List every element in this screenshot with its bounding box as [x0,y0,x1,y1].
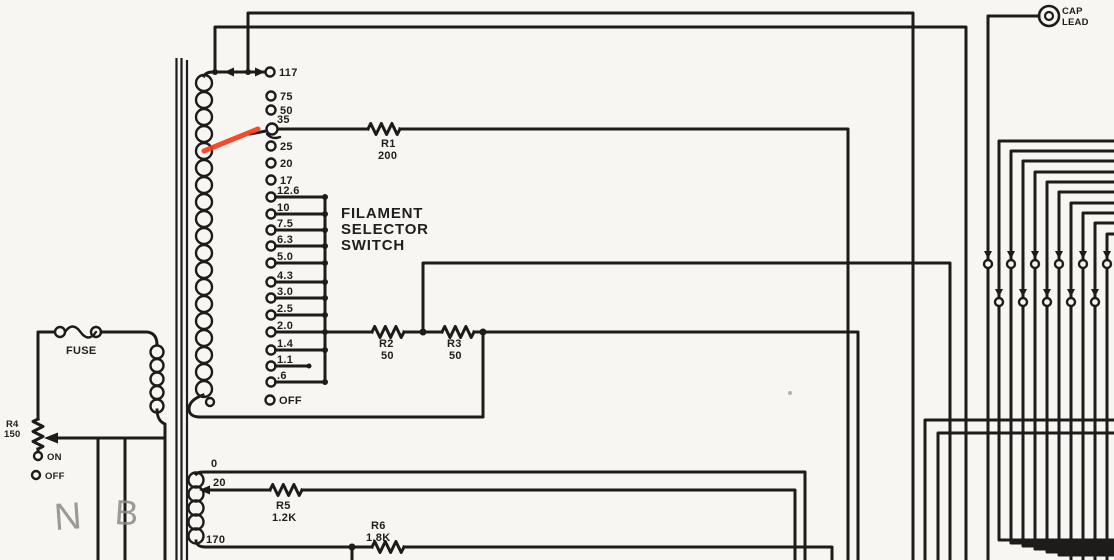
tap-label: 1.1 [277,354,293,366]
tap-label: 7.5 [277,218,293,230]
resistor-r2 [372,327,404,338]
tap-label: 117 [279,67,298,79]
resistor-name: R1 [381,138,396,150]
switch-title-line: FILAMENT [341,205,423,222]
filament-selector-switch: 117 75 50 35 25 20 17 12.6 10 7.5 6.3 5.… [266,67,429,407]
resistor-name: R2 [379,338,394,350]
paper-speck [788,391,792,395]
off-label: OFF [45,471,65,482]
tap-label: OFF [279,395,302,407]
tap-35 [267,124,278,135]
winding-tap-label: 0 [211,458,217,470]
switch-title-line: SWITCH [341,237,405,254]
resistor-r4 [33,419,43,449]
fuse-terminal [55,327,65,337]
tap-label: 2.5 [277,303,293,315]
winding-tap-label: 170 [206,534,225,546]
resistor-name: R3 [447,338,462,350]
primary-circuit: FUSE R4 150 ON OFF [4,327,165,560]
resistor-r3 [442,327,474,338]
tap-label: 1.4 [277,338,294,350]
resistor-value: 50 [449,350,462,362]
wiring-harness [925,141,1114,560]
arrow-right-icon [255,68,265,77]
resistor-name: R6 [371,520,386,532]
tap-label: 35 [277,114,290,126]
tap-label: 3.0 [277,286,293,298]
winding-tap-label: 20 [213,477,226,489]
resistor-value: 1.2K [272,512,296,524]
cap-lead-label: LEAD [1062,17,1089,28]
secondary-coil [189,72,214,417]
tap-label: .6 [277,370,287,382]
tap-label: 10 [277,202,290,214]
cap-lead-label: CAP [1062,6,1083,17]
tap-label: 2.0 [277,320,293,332]
off-terminal [32,471,40,479]
arrow-left-icon [224,68,234,77]
tap-20 [267,159,276,168]
tap-50 [267,106,276,115]
fuse-label: FUSE [66,345,97,357]
on-terminal [34,452,42,460]
resistor-r1 [368,124,400,135]
r2-r3-branch: R2 50 R3 50 [200,263,950,560]
tap-off [266,396,275,405]
resistor-value: 50 [381,350,394,362]
pencil-note-b: B [114,493,140,534]
schematic-scan: 117 75 50 35 25 20 17 12.6 10 7.5 6.3 5.… [0,0,1114,560]
resistor-name: R5 [276,500,291,512]
transformer-core [177,58,188,560]
cap-lead-terminal: CAP LEAD [988,6,1089,560]
tap-label: 75 [280,91,293,103]
tap-label: 6.3 [277,234,293,246]
tap-label: 20 [280,158,293,170]
tap-117 [266,68,275,77]
tap-2-0 [267,328,276,337]
resistor-r5 [270,485,302,496]
resistor-value: 150 [4,429,20,440]
tap-75 [267,92,276,101]
tap-label: 5.0 [277,251,293,263]
tap-label: 12.6 [277,185,300,197]
tap-label: 25 [280,141,293,153]
switch-title-line: SELECTOR [341,221,429,238]
r1-branch: R1 200 [250,124,848,560]
tap-25 [267,142,276,151]
on-label: ON [47,452,62,463]
tap-label: 4.3 [277,270,293,282]
pencil-note-n: N [53,495,83,539]
tap-17 [267,176,276,185]
resistor-value: 200 [378,150,397,162]
resistor-value: 1.8K [366,532,390,544]
lower-winding: 0 20 170 R5 1.2K R6 1.8K [189,458,833,560]
